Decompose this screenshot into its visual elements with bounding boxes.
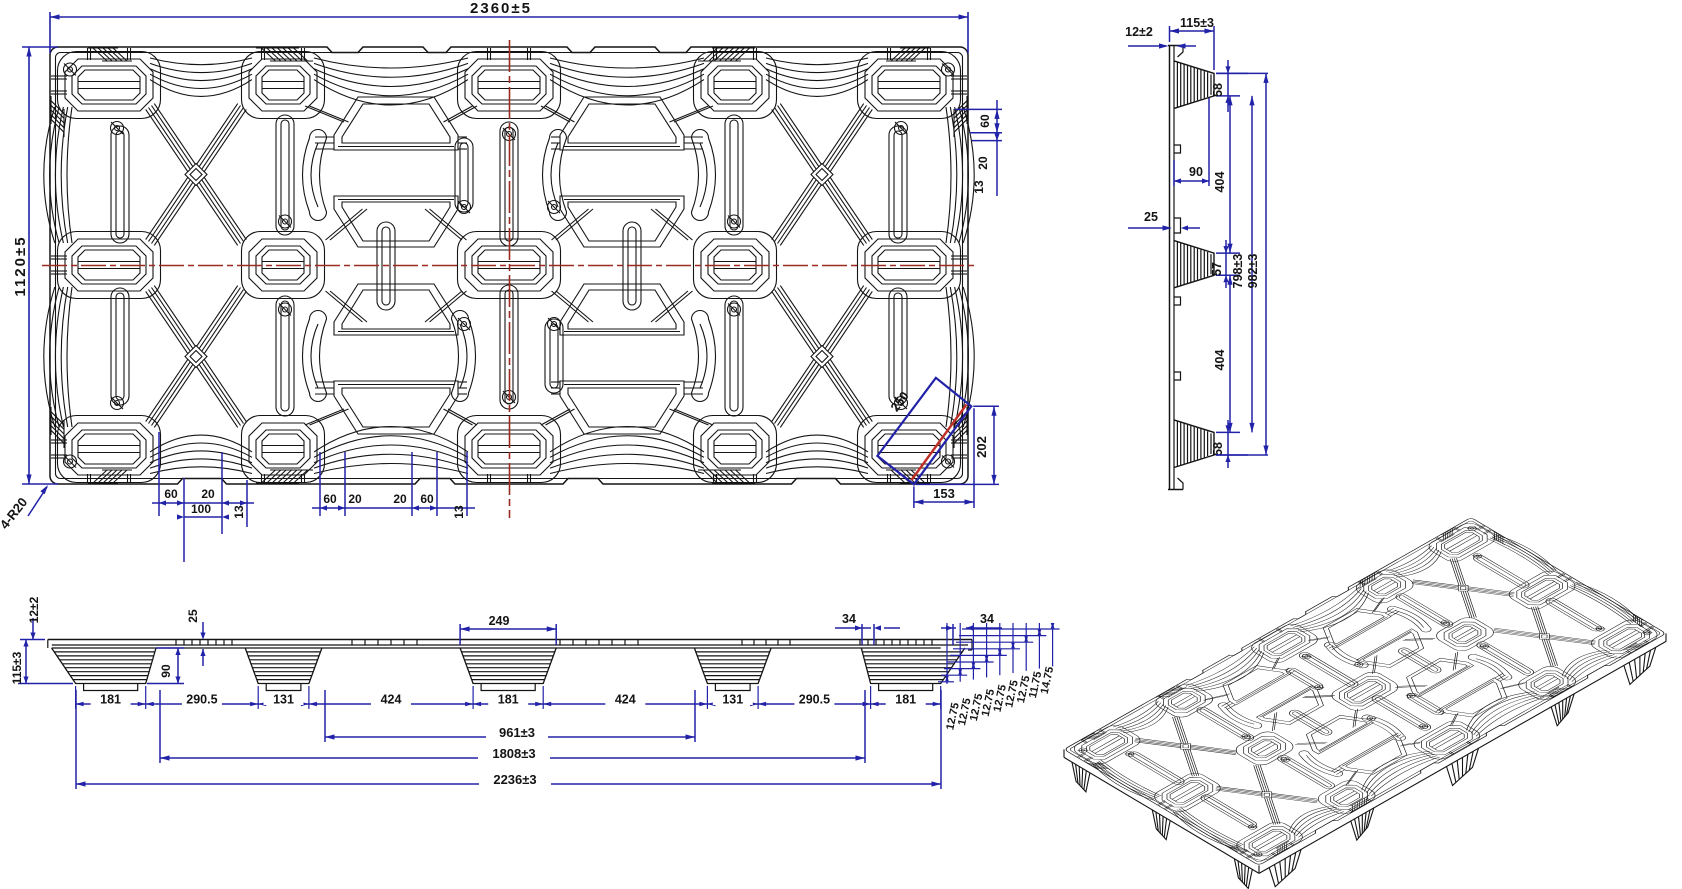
svg-text:60: 60 bbox=[323, 492, 337, 506]
svg-text:424: 424 bbox=[381, 693, 402, 707]
svg-text:115±3: 115±3 bbox=[10, 651, 24, 684]
svg-text:181: 181 bbox=[895, 693, 916, 707]
svg-text:202: 202 bbox=[974, 436, 989, 458]
svg-text:58: 58 bbox=[1211, 442, 1225, 456]
svg-text:2360±5: 2360±5 bbox=[470, 0, 532, 17]
svg-text:1808±3: 1808±3 bbox=[492, 746, 535, 761]
svg-text:25: 25 bbox=[1144, 210, 1158, 224]
svg-text:13: 13 bbox=[972, 180, 986, 194]
svg-text:12±2: 12±2 bbox=[27, 596, 41, 623]
svg-text:20: 20 bbox=[976, 156, 990, 170]
svg-text:58: 58 bbox=[1211, 83, 1225, 97]
svg-text:60: 60 bbox=[978, 114, 992, 128]
svg-text:20: 20 bbox=[348, 492, 362, 506]
svg-text:60: 60 bbox=[164, 487, 178, 501]
svg-text:2236±3: 2236±3 bbox=[493, 772, 536, 787]
svg-text:153: 153 bbox=[933, 486, 955, 501]
svg-text:60: 60 bbox=[420, 492, 434, 506]
svg-text:100: 100 bbox=[191, 502, 211, 516]
svg-text:90: 90 bbox=[1189, 165, 1203, 179]
svg-text:90: 90 bbox=[159, 664, 173, 678]
svg-text:181: 181 bbox=[498, 693, 519, 707]
svg-text:115±3: 115±3 bbox=[1180, 16, 1214, 30]
svg-text:20: 20 bbox=[393, 492, 407, 506]
svg-text:290.5: 290.5 bbox=[186, 693, 217, 707]
svg-text:404: 404 bbox=[1213, 350, 1227, 371]
svg-text:404: 404 bbox=[1213, 172, 1227, 193]
svg-text:181: 181 bbox=[100, 693, 121, 707]
svg-text:290.5: 290.5 bbox=[799, 693, 830, 707]
svg-text:34: 34 bbox=[842, 612, 856, 626]
svg-text:12±2: 12±2 bbox=[1125, 25, 1153, 39]
svg-text:982±3: 982±3 bbox=[1246, 254, 1260, 289]
svg-text:13: 13 bbox=[452, 505, 466, 519]
svg-text:798±3: 798±3 bbox=[1231, 254, 1245, 289]
svg-text:13: 13 bbox=[232, 505, 246, 519]
svg-text:249: 249 bbox=[489, 614, 510, 628]
svg-text:961±3: 961±3 bbox=[499, 725, 535, 740]
svg-text:57: 57 bbox=[1210, 262, 1224, 276]
svg-text:131: 131 bbox=[722, 693, 743, 707]
svg-text:20: 20 bbox=[201, 487, 215, 501]
svg-text:25: 25 bbox=[186, 609, 200, 623]
svg-text:1120±5: 1120±5 bbox=[12, 235, 29, 296]
svg-text:424: 424 bbox=[615, 693, 636, 707]
svg-text:131: 131 bbox=[273, 693, 294, 707]
